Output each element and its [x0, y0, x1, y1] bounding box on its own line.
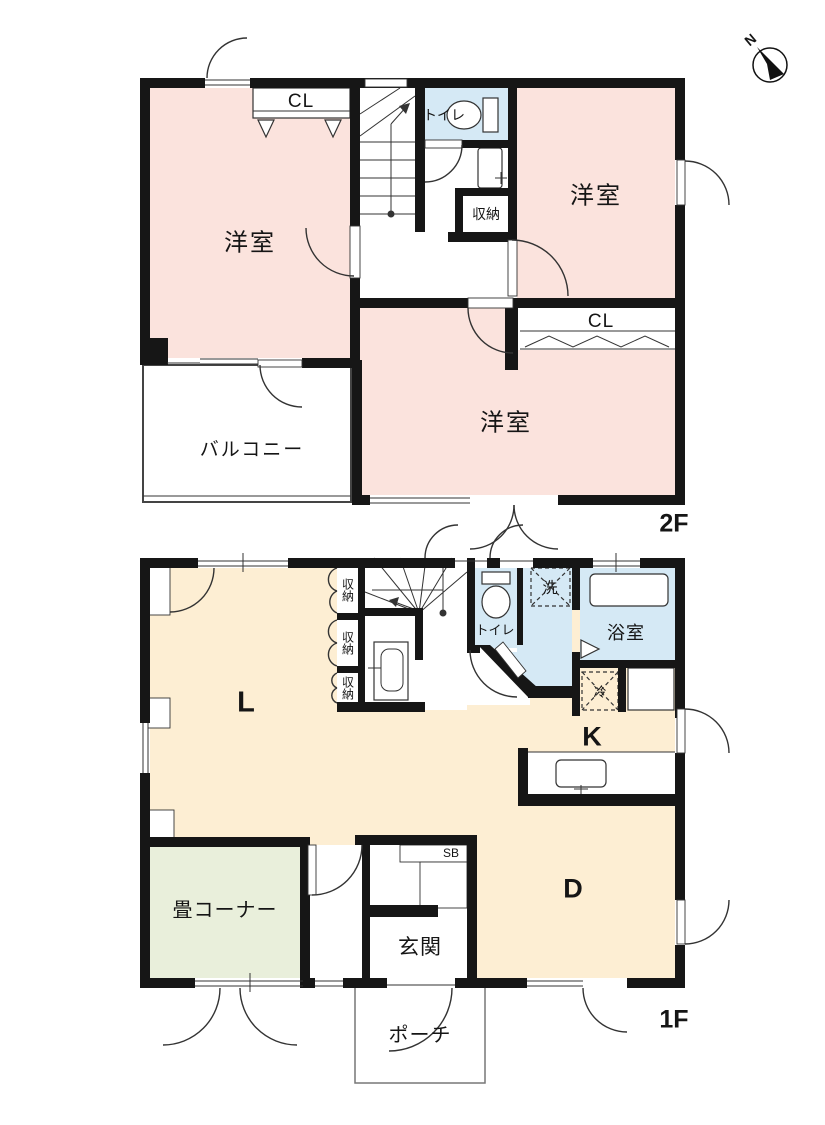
label-1f-shoebox: SB — [443, 846, 459, 860]
floor-plan-canvas: N 洋室 CL トイレ 収納 洋室 CL 洋室 バルコニー 2F 収納 収納 収… — [0, 0, 825, 1125]
label-1f-tatami: 畳コーナー — [173, 894, 278, 923]
label-1f-dining: D — [563, 874, 583, 905]
floor1-plan — [140, 525, 729, 1083]
label-2f-closet-s: CL — [588, 311, 614, 333]
washbasin-1f — [368, 642, 408, 700]
label-1f-kitchen: K — [582, 722, 602, 753]
label-2f-bedroom-s: 洋室 — [480, 403, 532, 438]
label-1f-storage-1: 収納 — [340, 578, 357, 602]
label-2f-balcony: バルコニー — [200, 435, 305, 462]
kitchen-back-counter — [628, 668, 674, 710]
label-1f-storage-3: 収納 — [340, 676, 357, 700]
label-1f-floor: 1F — [659, 1006, 688, 1035]
label-1f-storage-2: 収納 — [340, 631, 357, 655]
label-1f-bath: 浴室 — [607, 619, 645, 645]
label-1f-entrance: 玄関 — [398, 931, 442, 961]
label-1f-porch: ポーチ — [389, 1019, 452, 1048]
north-arrow-icon — [753, 47, 787, 82]
label-2f-floor: 2F — [659, 510, 688, 539]
toilet-fixture-1f — [482, 572, 510, 618]
bathtub — [590, 574, 668, 606]
label-2f-storage: 収納 — [472, 204, 500, 224]
balcony-outline — [143, 365, 351, 502]
entrance-step — [363, 905, 438, 917]
kitchen-counter — [518, 752, 675, 794]
label-1f-living: L — [237, 687, 255, 720]
kitchen-sink — [556, 760, 606, 787]
label-2f-bedroom-nw: 洋室 — [224, 223, 276, 258]
label-2f-toilet: トイレ — [423, 105, 465, 125]
label-2f-bedroom-ne: 洋室 — [570, 176, 622, 211]
shoe-cabinet — [420, 862, 467, 908]
label-1f-fridge: 冷 — [593, 682, 606, 701]
label-2f-closet-nw: CL — [288, 91, 314, 113]
label-1f-toilet: トイレ — [475, 620, 514, 639]
label-1f-laundry: 洗 — [542, 577, 557, 598]
